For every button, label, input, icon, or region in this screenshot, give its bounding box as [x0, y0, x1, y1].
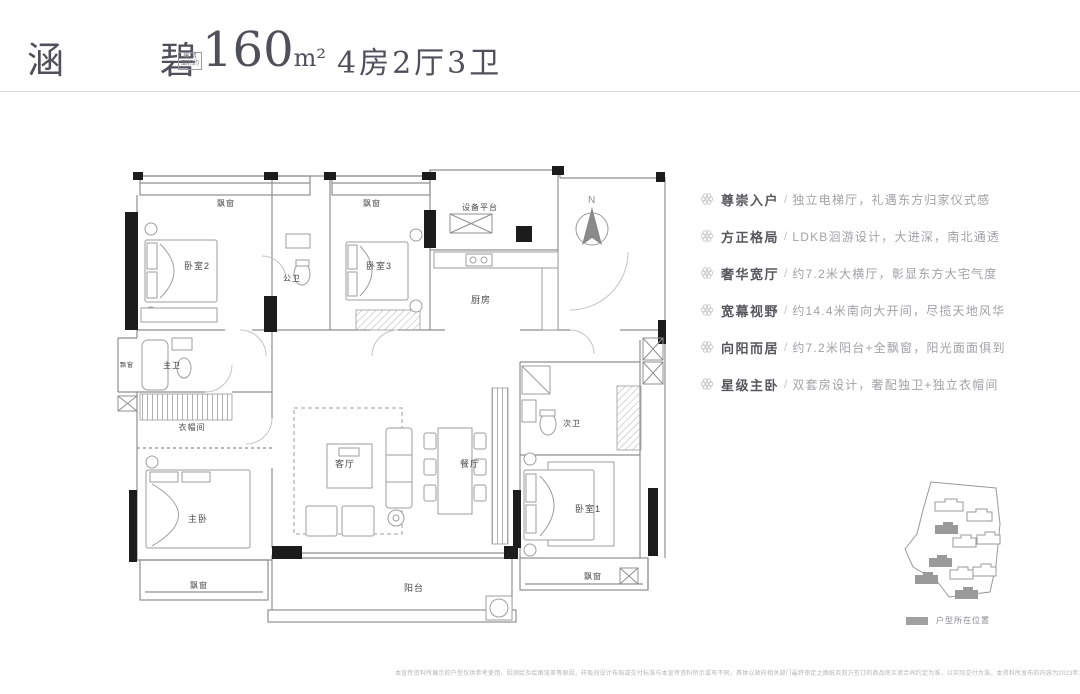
flower-icon [700, 340, 714, 354]
feature-desc: 约7.2米大横厅，彰显东方大宅气度 [792, 265, 997, 282]
feature-item: 星级主卧 / 双套房设计，奢配独卫+独立衣帽间 [700, 373, 1020, 395]
room-label-bay-window-top-left: 飘窗 [217, 198, 235, 208]
feature-desc: 双套房设计，奢配独卫+独立衣帽间 [792, 376, 998, 393]
room-label-guest-bath: 公卫 [283, 274, 301, 283]
area-note-line1: 建 筑 [181, 54, 199, 61]
area-note: 建 筑 面积约 [178, 52, 202, 70]
room-label-bedroom-3: 卧室3 [366, 260, 392, 271]
room-label-living-room: 客厅 [335, 458, 355, 469]
feature-separator: / [784, 377, 787, 391]
siteplan-map [893, 470, 1018, 612]
room-label-bay-window-bottom-left: 飘窗 [190, 580, 208, 590]
header-divider [0, 91, 1080, 92]
room-label-bay-window-left: 飘窗 [120, 361, 134, 369]
feature-item: 宽幕视野 / 约14.4米南向大开间，尽揽天地风华 [700, 299, 1020, 321]
feature-title: 尊崇入户 [721, 190, 779, 209]
feature-separator: / [784, 340, 787, 354]
door-arcs [205, 252, 628, 444]
flower-icon [700, 377, 714, 391]
feature-title: 宽幕视野 [721, 301, 779, 320]
feature-desc: LDKB洄游设计，大进深，南北通透 [792, 228, 1000, 245]
feature-title: 星级主卧 [721, 375, 779, 394]
room-label-master-bath: 主卫 [163, 360, 181, 370]
feature-title: 奢华宽厅 [721, 264, 779, 283]
room-label-dining-room: 餐厅 [460, 458, 480, 469]
room-label-equipment-platform: 设备平台 [462, 202, 498, 212]
flower-icon [700, 266, 714, 280]
feature-desc: 约14.4米南向大开间，尽揽天地风华 [792, 302, 1005, 319]
feature-desc: 约7.2米阳台+全飘窗，阳光面面俱到 [792, 339, 1005, 356]
room-label-bay-window-bottom-right: 飘窗 [584, 571, 602, 581]
disclaimer-text: 本宣传资料所展示的户型仅供参考使用，因测绘及绘图误差等原因，样板间设计布局或交付… [395, 668, 1080, 677]
area-value: 160m² [202, 24, 326, 84]
feature-title: 方正格局 [721, 227, 779, 246]
legend-swatch [906, 617, 928, 625]
floorplan-page: 涵 碧 建 筑 面积约 160m² 4房2厅3卫 [0, 0, 1080, 694]
siteplan-legend: 户型所在位置 [906, 615, 990, 626]
floorplan-drawing: N 飘窗卧室2公卫飘窗卧室3设备平台厨房飘窗主卫衣帽间主卧客厅餐厅次卫卧室1飘窗… [115, 165, 680, 630]
flower-icon [700, 229, 714, 243]
siteplan-buildings-highlight [915, 522, 978, 599]
area-note-line2: 面积约 [181, 61, 199, 68]
room-label-bedroom-2: 卧室2 [184, 260, 210, 271]
feature-list: 尊崇入户 / 独立电梯厅，礼遇东方归家仪式感 方正格局 / LDKB洄游设计，大… [700, 188, 1020, 410]
room-label-master-bedroom: 主卧 [188, 513, 208, 524]
flower-icon [700, 303, 714, 317]
room-label-kitchen: 厨房 [471, 294, 491, 305]
feature-item: 向阳而居 / 约7.2米阳台+全飘窗，阳光面面俱到 [700, 336, 1020, 358]
room-label-second-bath: 次卫 [563, 418, 581, 428]
compass-n-label: N [588, 195, 595, 206]
layout-text: 4房2厅3卫 [337, 38, 502, 82]
area-number: 160 [202, 22, 294, 78]
area-unit: m² [294, 44, 326, 72]
room-label-bay-window-top-mid: 飘窗 [363, 198, 381, 208]
flower-icon [700, 192, 714, 206]
feature-separator: / [784, 266, 787, 280]
feature-item: 方正格局 / LDKB洄游设计，大进深，南北通透 [700, 225, 1020, 247]
room-label-balcony: 阳台 [404, 582, 424, 593]
feature-title: 向阳而居 [721, 338, 779, 357]
feature-item: 奢华宽厅 / 约7.2米大横厅，彰显东方大宅气度 [700, 262, 1020, 284]
feature-item: 尊崇入户 / 独立电梯厅，礼遇东方归家仪式感 [700, 188, 1020, 210]
feature-desc: 独立电梯厅，礼遇东方归家仪式感 [792, 191, 990, 208]
feature-separator: / [784, 192, 787, 206]
room-label-walk-in-closet: 衣帽间 [179, 422, 206, 432]
legend-label: 户型所在位置 [936, 615, 990, 626]
feature-separator: / [784, 229, 787, 243]
north-compass: N [576, 195, 608, 245]
room-label-bedroom-1: 卧室1 [575, 503, 601, 514]
feature-separator: / [784, 303, 787, 317]
